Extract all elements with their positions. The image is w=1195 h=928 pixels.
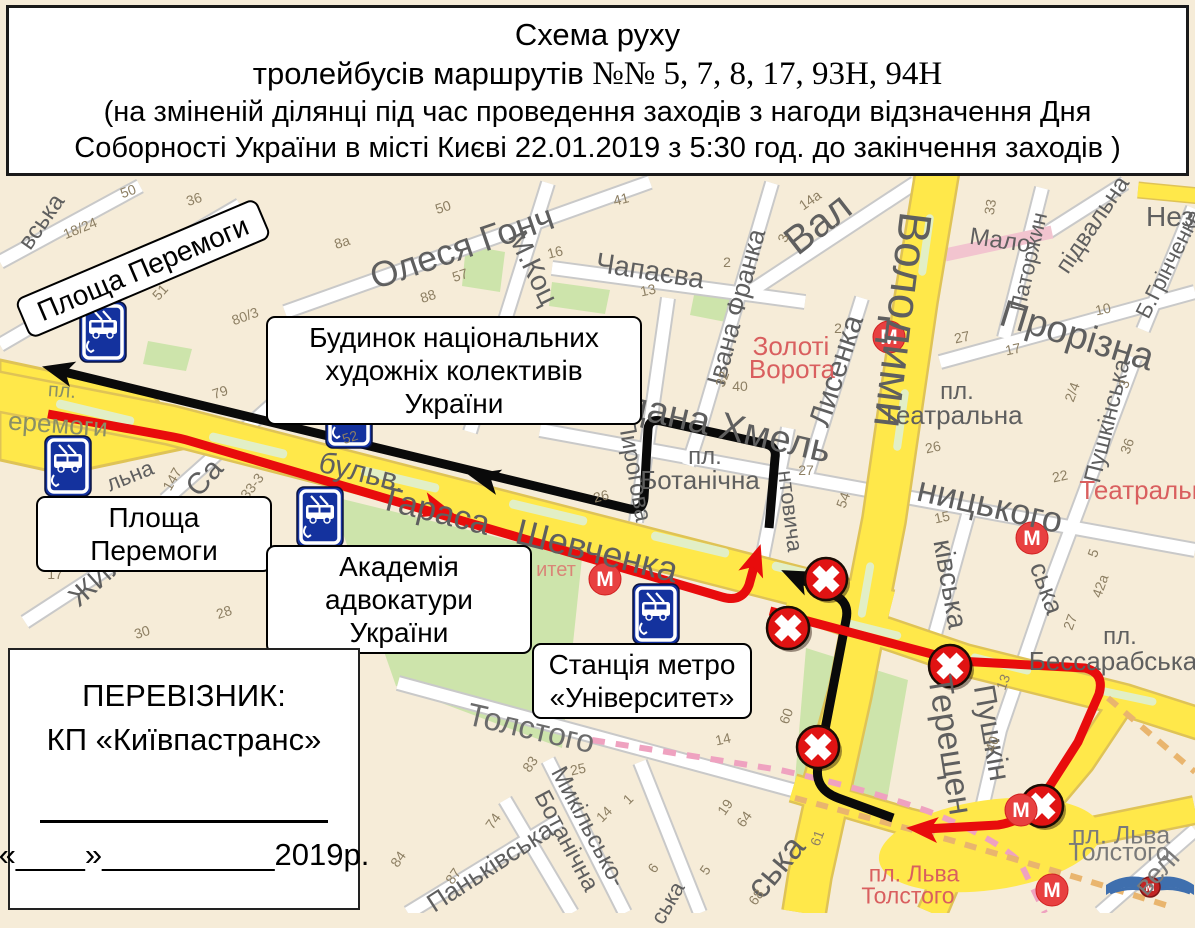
house-number: 16 <box>546 243 565 260</box>
callout-text: Станція метро <box>544 648 740 681</box>
title-line-2-sans: тролейбусів маршрутів <box>253 56 593 91</box>
house-number: 10 <box>1094 301 1112 318</box>
callout-text: Будинок національних <box>278 321 630 354</box>
callout-text: «Університет» <box>544 681 740 714</box>
title-line-2: тролейбусів маршрутів №№ 5, 7, 8, 17, 93… <box>9 56 1186 93</box>
scheme-title-box: Схема руху тролейбусів маршрутів №№ 5, 7… <box>6 5 1189 176</box>
house-number: 14 <box>714 731 732 748</box>
svg-text:М: М <box>1145 882 1154 894</box>
callout-text: Площа Перемоги <box>90 502 218 566</box>
carrier-label: ПЕРЕВІЗНИК: <box>82 678 286 714</box>
house-number: 27 <box>953 329 971 346</box>
house-number: 26 <box>592 487 611 504</box>
house-number: 13 <box>639 282 657 299</box>
house-number: 2 <box>723 255 731 269</box>
house-number: 27 <box>798 463 814 477</box>
house-number: 26 <box>924 439 942 456</box>
house-number: 41 <box>612 190 631 207</box>
trolleybus-stop-icon <box>45 436 91 496</box>
house-number: 22 <box>1051 468 1069 485</box>
metro-icon <box>873 321 905 353</box>
callout-akademia-advokatury: Академія адвокатури України <box>266 545 532 654</box>
callout-ploshcha-peremohy: Площа Перемоги <box>36 496 272 572</box>
carrier-name: КП «Київпастранс» <box>47 722 322 758</box>
house-number: 17 <box>1004 341 1022 358</box>
callout-text: художніх колективів України <box>278 354 630 420</box>
title-line-3: (на зміненій ділянці під час проведення … <box>9 96 1186 129</box>
house-number: 25 <box>569 761 587 778</box>
house-number: 2 <box>834 321 842 335</box>
date-line: «____»__________2019р. <box>0 837 369 873</box>
signature-line <box>40 820 328 823</box>
metro-icon <box>1036 874 1068 906</box>
trolleybus-stop-icon <box>297 487 343 547</box>
callout-text: Академія <box>278 550 520 583</box>
callout-text: адвокатури України <box>278 583 520 649</box>
house-number: 15 <box>933 509 951 526</box>
title-line-2-routes: №№ 5, 7, 8, 17, 93Н, 94Н <box>592 56 942 92</box>
callout-metro-universytet: Станція метро «Університет» <box>532 643 752 719</box>
metro-icon <box>1016 522 1048 554</box>
house-number: 33 <box>982 198 998 216</box>
title-line-1: Схема руху <box>9 17 1186 53</box>
carrier-info-box: ПЕРЕВІЗНИК: КП «Київпастранс» «____»____… <box>8 648 360 910</box>
house-number: 40 <box>732 379 748 393</box>
metro-icon <box>1005 794 1037 826</box>
title-line-4: Соборності України в місті Києві 22.01.2… <box>9 132 1186 165</box>
trolleybus-detour-scheme: { "title": { "line1": "Схема руху", "lin… <box>0 0 1195 913</box>
trolleybus-stop-icon <box>633 584 679 644</box>
metro-icon <box>589 563 621 595</box>
callout-budynok-kolektyviv: Будинок національних художніх колективів… <box>266 316 642 425</box>
